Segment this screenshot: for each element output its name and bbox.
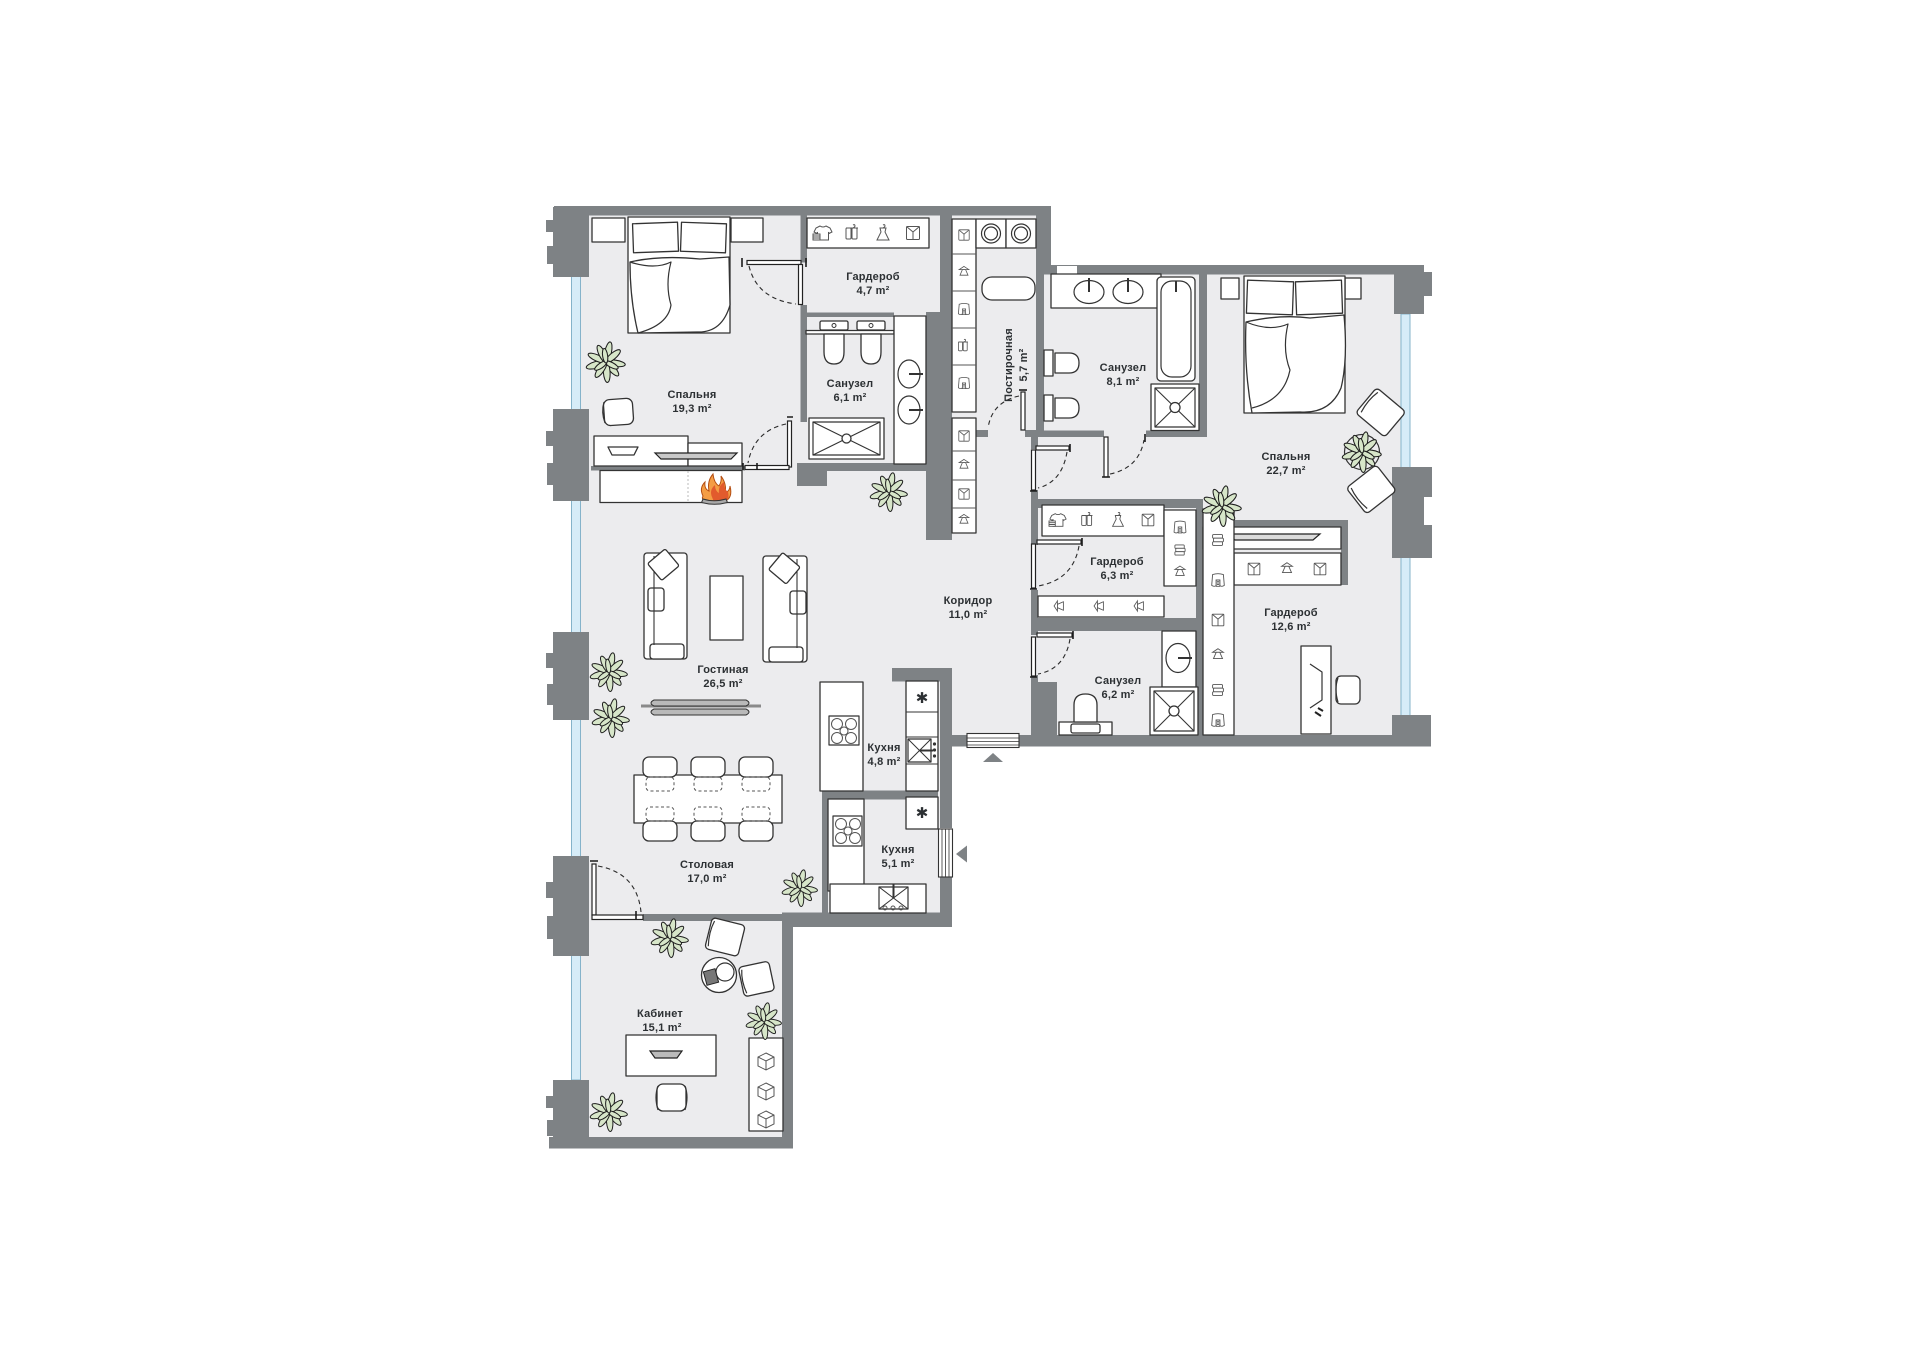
svg-text:Столовая: Столовая <box>680 859 734 871</box>
svg-text:Санузел: Санузел <box>1100 362 1147 374</box>
svg-text:Гостиная: Гостиная <box>697 664 748 676</box>
svg-text:5,1 m²: 5,1 m² <box>882 858 915 870</box>
svg-text:5,7 m²: 5,7 m² <box>1018 348 1030 381</box>
svg-text:Гардероб: Гардероб <box>1264 607 1318 619</box>
svg-text:Спальня: Спальня <box>1262 451 1311 463</box>
svg-text:12,6 m²: 12,6 m² <box>1271 621 1310 633</box>
svg-text:Коридор: Коридор <box>944 595 993 607</box>
svg-text:4,8 m²: 4,8 m² <box>868 756 901 768</box>
svg-text:✱: ✱ <box>916 805 929 822</box>
svg-text:17,0 m²: 17,0 m² <box>687 873 726 885</box>
svg-text:Постирочная: Постирочная <box>1003 328 1015 402</box>
svg-text:Гардероб: Гардероб <box>1090 556 1144 568</box>
svg-text:11,0 m²: 11,0 m² <box>949 609 988 621</box>
svg-text:Гардероб: Гардероб <box>846 271 900 283</box>
svg-text:15,1 m²: 15,1 m² <box>642 1022 681 1034</box>
svg-text:Спальня: Спальня <box>668 389 717 401</box>
svg-text:22,7 m²: 22,7 m² <box>1266 465 1305 477</box>
svg-text:Кабинет: Кабинет <box>637 1008 683 1020</box>
svg-text:Санузел: Санузел <box>1095 675 1142 687</box>
svg-text:Санузел: Санузел <box>827 378 874 390</box>
svg-text:26,5 m²: 26,5 m² <box>703 678 742 690</box>
svg-text:Кухня: Кухня <box>867 742 900 754</box>
svg-text:19,3 m²: 19,3 m² <box>672 403 711 415</box>
svg-text:4,7 m²: 4,7 m² <box>857 285 890 297</box>
svg-text:Кухня: Кухня <box>881 844 914 856</box>
svg-text:6,2 m²: 6,2 m² <box>1102 689 1135 701</box>
svg-text:✱: ✱ <box>916 690 929 707</box>
svg-text:6,1 m²: 6,1 m² <box>834 392 867 404</box>
svg-text:6,3 m²: 6,3 m² <box>1101 570 1134 582</box>
svg-text:8,1 m²: 8,1 m² <box>1107 376 1140 388</box>
